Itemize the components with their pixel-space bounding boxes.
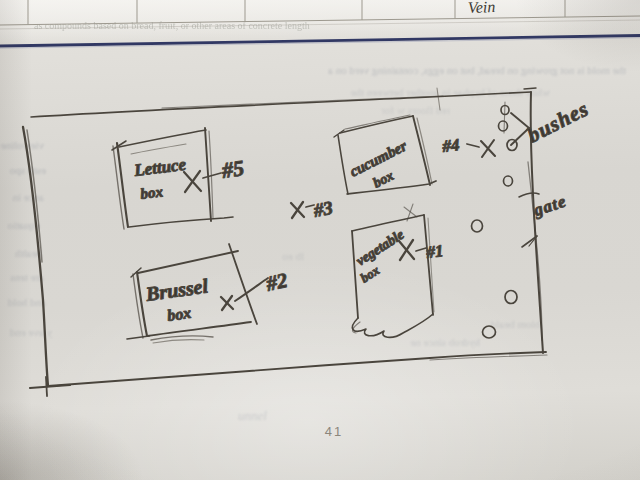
page-number: 41 bbox=[316, 424, 352, 439]
gate-label: gate bbox=[530, 191, 568, 220]
lettuce-label-line2: box bbox=[139, 183, 164, 202]
vegetable-number-tag: #1 bbox=[424, 241, 444, 262]
spot4-x-marker bbox=[467, 140, 495, 157]
brussel-box-label: Brussel box bbox=[144, 274, 210, 324]
cucumber-box-label: cucumber box bbox=[347, 137, 409, 190]
sketch-svg: Vein bbox=[0, 0, 640, 480]
spot4-number-tag: #4 bbox=[440, 135, 460, 156]
vein-cell-label: Vein bbox=[468, 0, 496, 16]
cucumber-number-tag: #3 bbox=[311, 197, 334, 221]
vegetable-label-line1: vegetable bbox=[353, 227, 406, 269]
bushes-label: bushes bbox=[523, 96, 592, 147]
lettuce-box-outline bbox=[112, 128, 233, 229]
garden-boundary-outline bbox=[23, 88, 547, 396]
cucumber-label-line2: box bbox=[371, 168, 397, 191]
brussel-label-line1: Brussel bbox=[144, 274, 210, 305]
lettuce-label-line1: Lettuce bbox=[132, 155, 187, 180]
brussel-x-marker bbox=[221, 278, 268, 310]
pencil-sketch: Lettuce box #5 cucumber box bbox=[23, 88, 593, 396]
brussel-number-tag: #2 bbox=[263, 268, 290, 296]
brussel-label-line2: box bbox=[166, 304, 192, 324]
cucumber-x-marker bbox=[291, 202, 314, 218]
lettuce-number-tag: #5 bbox=[219, 155, 245, 183]
blue-divider-line bbox=[0, 36, 640, 49]
vein-text: Vein bbox=[468, 0, 496, 16]
planting-spot-circles bbox=[472, 102, 518, 338]
vegetable-x-marker bbox=[399, 240, 426, 260]
lettuce-x-marker bbox=[184, 171, 221, 192]
lettuce-box-label: Lettuce box bbox=[132, 155, 187, 202]
printed-table bbox=[0, 0, 640, 29]
photo-of-garden-sketch-page: as compounds based on bread, fruit, or o… bbox=[0, 0, 640, 480]
vegetable-box-label: vegetable box bbox=[353, 227, 406, 286]
